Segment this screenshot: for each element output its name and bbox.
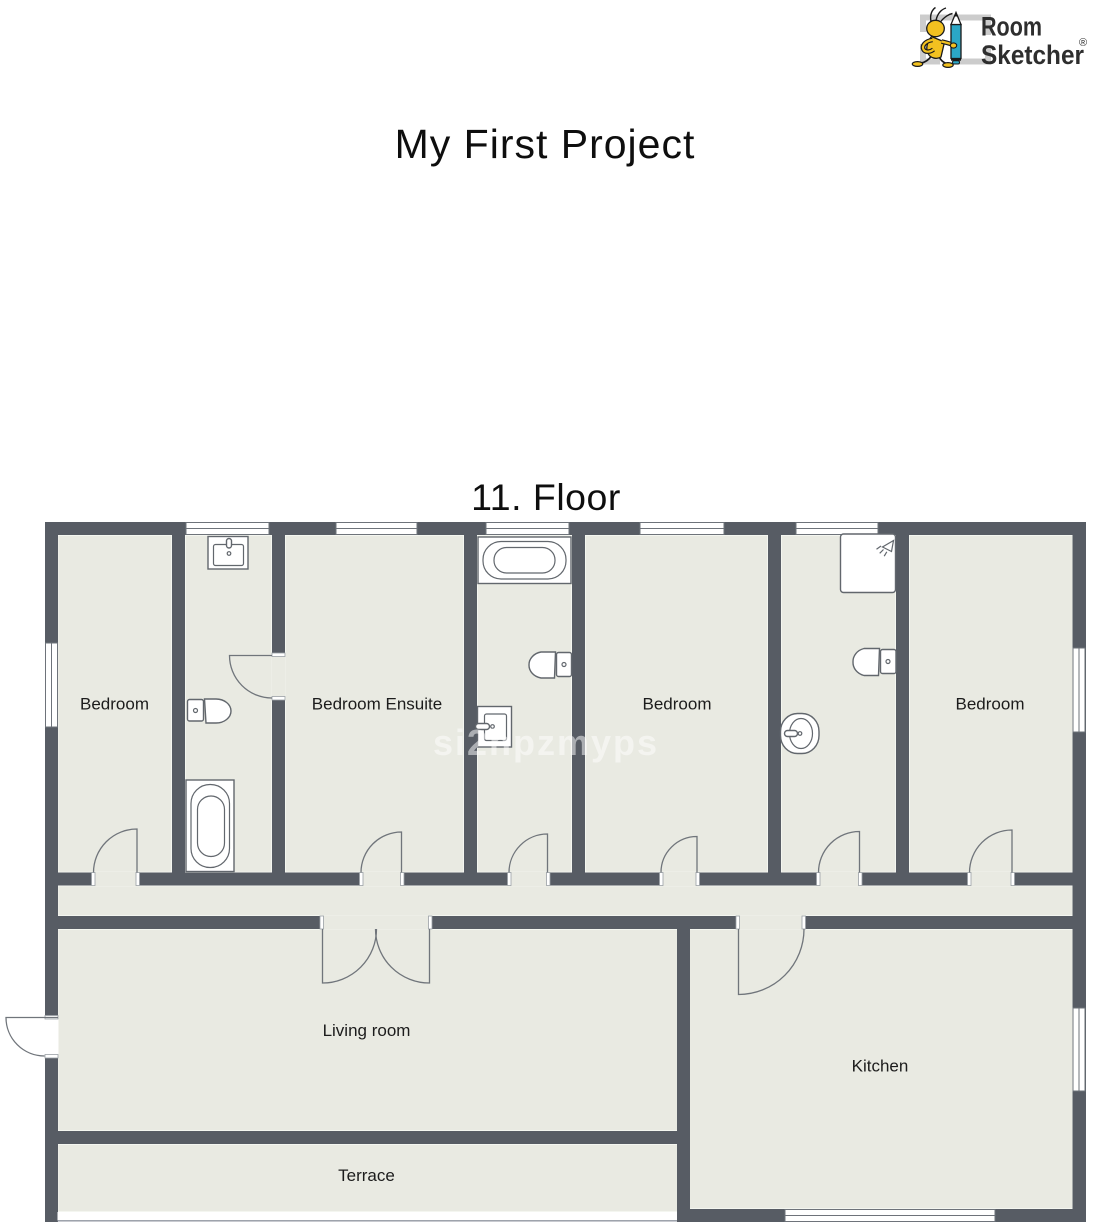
svg-text:Room: Room xyxy=(981,12,1042,42)
svg-text:®: ® xyxy=(1079,37,1087,49)
svg-text:Kitchen: Kitchen xyxy=(852,1057,909,1076)
svg-text:Sketcher: Sketcher xyxy=(981,40,1084,70)
svg-text:My First Project: My First Project xyxy=(395,121,696,167)
svg-text:Living room: Living room xyxy=(323,1021,411,1040)
svg-text:Bedroom: Bedroom xyxy=(80,695,149,714)
svg-text:11. Floor: 11. Floor xyxy=(471,476,621,518)
svg-text:Bedroom Ensuite: Bedroom Ensuite xyxy=(312,695,442,714)
svg-text:Bedroom: Bedroom xyxy=(956,695,1025,714)
svg-text:si2hpzmyps: si2hpzmyps xyxy=(433,722,659,763)
svg-text:Terrace: Terrace xyxy=(338,1166,395,1185)
svg-text:Bedroom: Bedroom xyxy=(643,695,712,714)
